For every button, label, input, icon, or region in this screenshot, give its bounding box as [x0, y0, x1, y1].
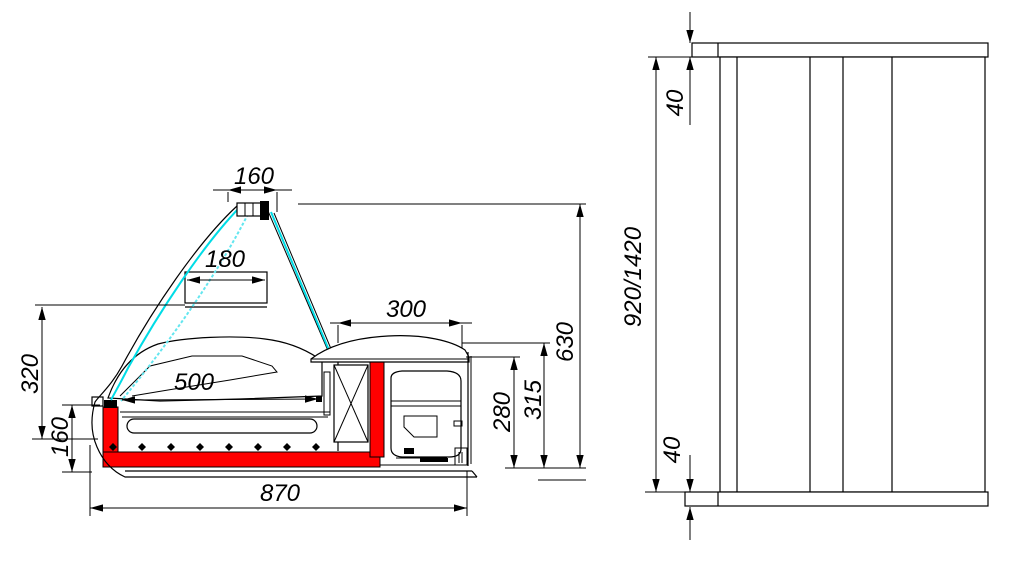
rivet-dots [109, 443, 320, 451]
dim-label-total-height: 630 [552, 321, 579, 362]
front-body [720, 57, 985, 492]
dim-label-display-length: 500 [174, 369, 215, 396]
overshelf [185, 272, 267, 307]
dim-label-bay-inner-height: 280 [489, 391, 516, 433]
side-view [92, 201, 477, 477]
dim-label-bay-height: 315 [520, 379, 547, 420]
dim-label-shelf-width: 180 [205, 246, 246, 273]
dim-label-total-depth: 870 [260, 480, 301, 507]
drip-tray [127, 419, 317, 433]
condenser [334, 365, 368, 442]
top-slab [692, 43, 988, 57]
dim-label-top-thickness: 40 [662, 89, 689, 116]
dim-label-bottom-thickness: 40 [659, 436, 686, 463]
compressor [391, 371, 467, 465]
front-view-dimensions: 40 920/1420 40 [620, 12, 720, 540]
dim-label-base-height: 160 [47, 416, 74, 457]
front-view [685, 43, 988, 506]
rear-glass [268, 211, 334, 356]
dim-label-glass-height: 320 [17, 353, 44, 394]
machine-bay [316, 352, 471, 466]
drawing-canvas: 160 180 500 300 320 160 870 280 [0, 0, 1015, 567]
base [125, 471, 477, 477]
bay-canopy [311, 336, 469, 362]
bottom-slab [685, 492, 988, 506]
dim-label-bay-width: 300 [386, 296, 427, 323]
dim-label-length: 920/1420 [620, 226, 647, 327]
lamp-fixture [237, 201, 269, 220]
dim-label-lamp-width: 160 [234, 163, 275, 190]
counter-nose-cap [104, 400, 117, 408]
bay-divider-red [370, 362, 384, 457]
technical-drawing: 160 180 500 300 320 160 870 280 [0, 0, 1015, 567]
